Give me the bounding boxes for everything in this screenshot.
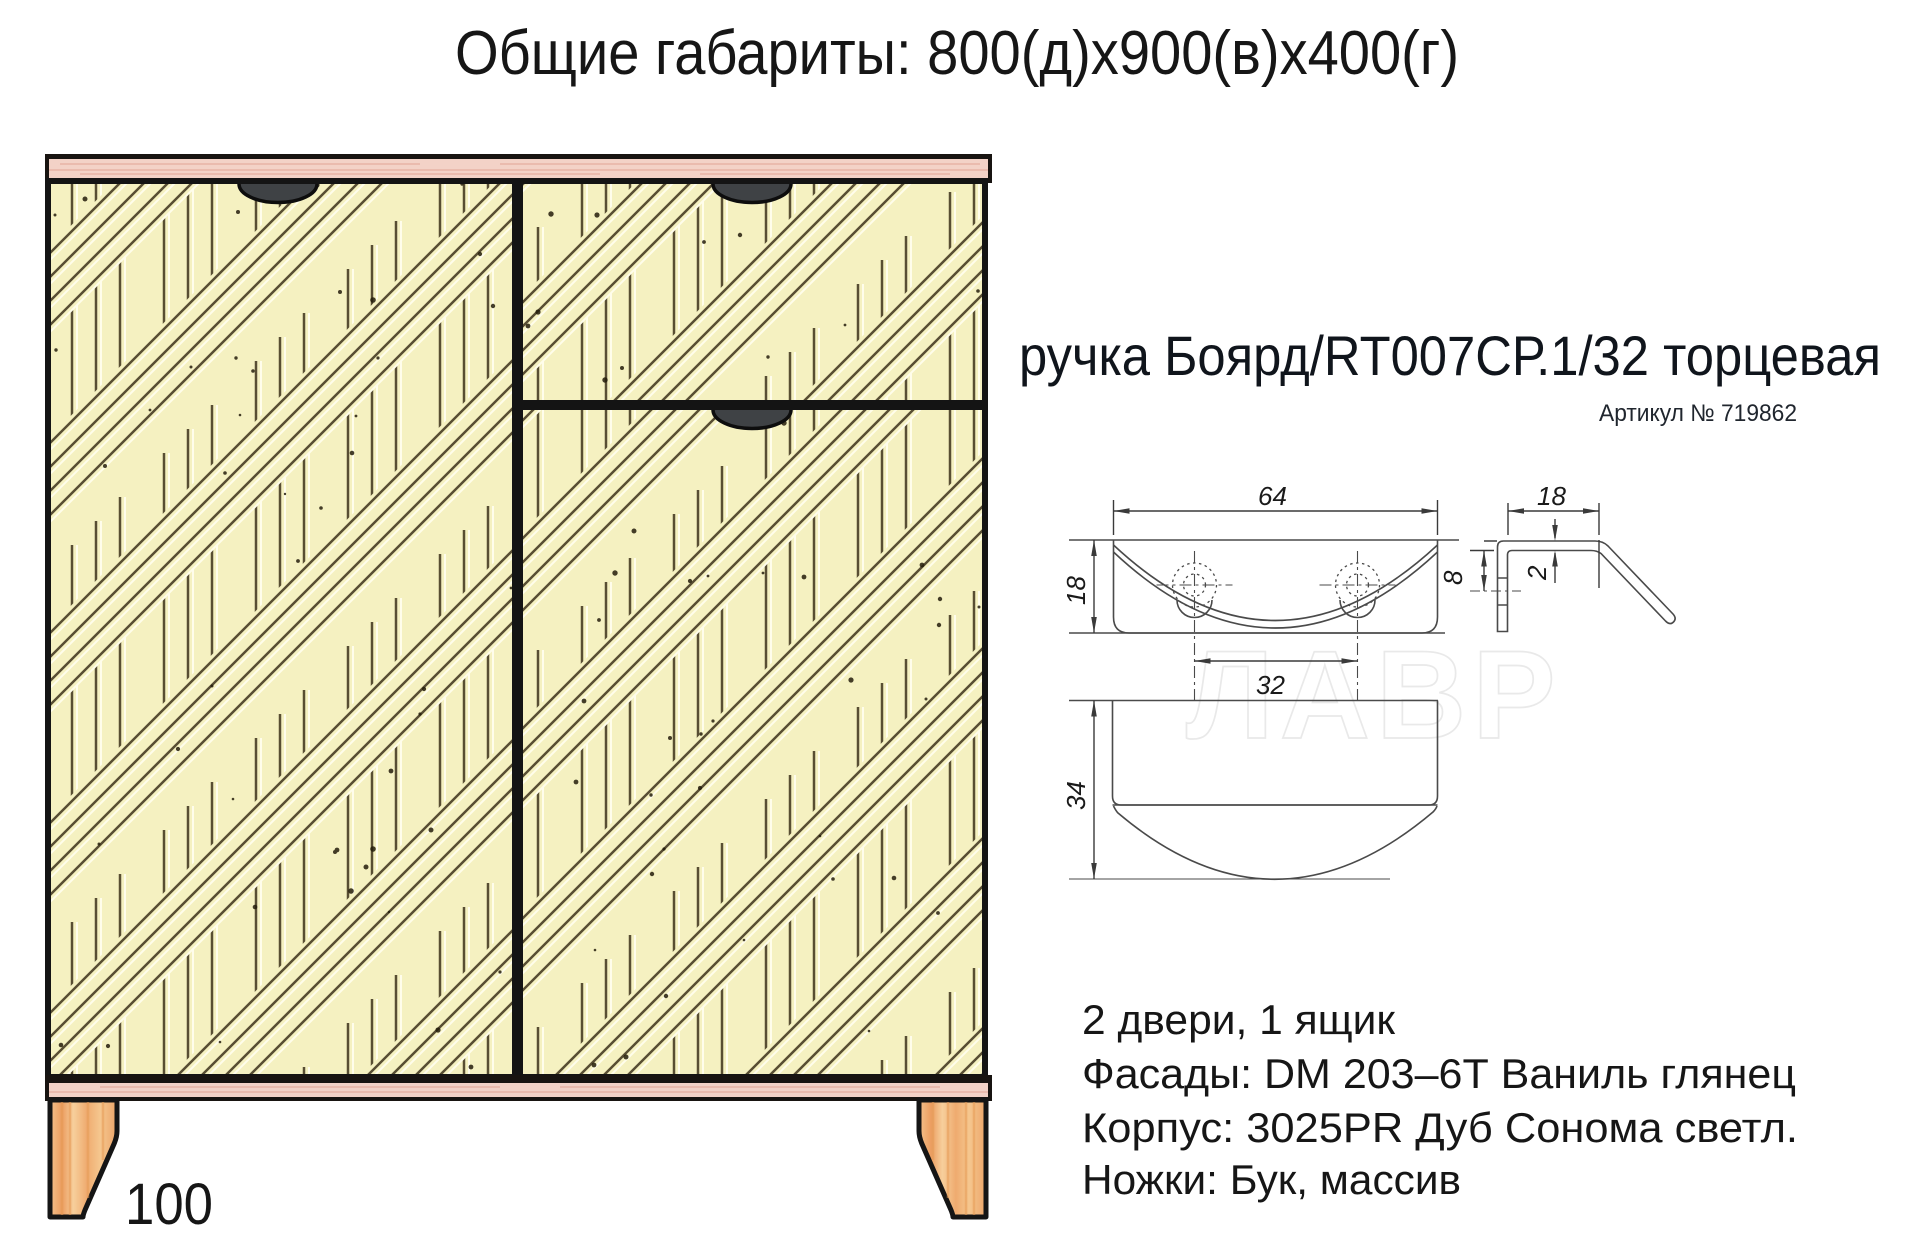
svg-text:Общие габариты: 800(д)х900(в)х: Общие габариты: 800(д)х900(в)х400(г) bbox=[455, 19, 1459, 88]
svg-text:100: 100 bbox=[125, 1172, 213, 1237]
svg-text:18: 18 bbox=[1061, 576, 1091, 605]
svg-text:ЛАВР: ЛАВР bbox=[1186, 626, 1562, 765]
svg-text:ручка Боярд/RT007СР.1/32 торце: ручка Боярд/RT007СР.1/32 торцевая bbox=[1019, 324, 1881, 387]
svg-text:Артикул № 719862: Артикул № 719862 bbox=[1599, 400, 1797, 427]
svg-text:2: 2 bbox=[1522, 565, 1552, 581]
svg-text:32: 32 bbox=[1256, 670, 1285, 700]
svg-text:34: 34 bbox=[1061, 781, 1091, 810]
svg-text:18: 18 bbox=[1537, 481, 1566, 511]
svg-text:Фасады: DM 203–6Т Ваниль гляне: Фасады: DM 203–6Т Ваниль глянец bbox=[1082, 1050, 1796, 1097]
svg-text:64: 64 bbox=[1258, 481, 1287, 511]
svg-text:2 двери, 1 ящик: 2 двери, 1 ящик bbox=[1082, 996, 1396, 1043]
svg-text:8: 8 bbox=[1438, 570, 1468, 585]
svg-text:Ножки: Бук, массив: Ножки: Бук, массив bbox=[1082, 1156, 1461, 1203]
svg-text:Корпус: 3025PR Дуб Сонома свет: Корпус: 3025PR Дуб Сонома светл. bbox=[1082, 1104, 1798, 1151]
